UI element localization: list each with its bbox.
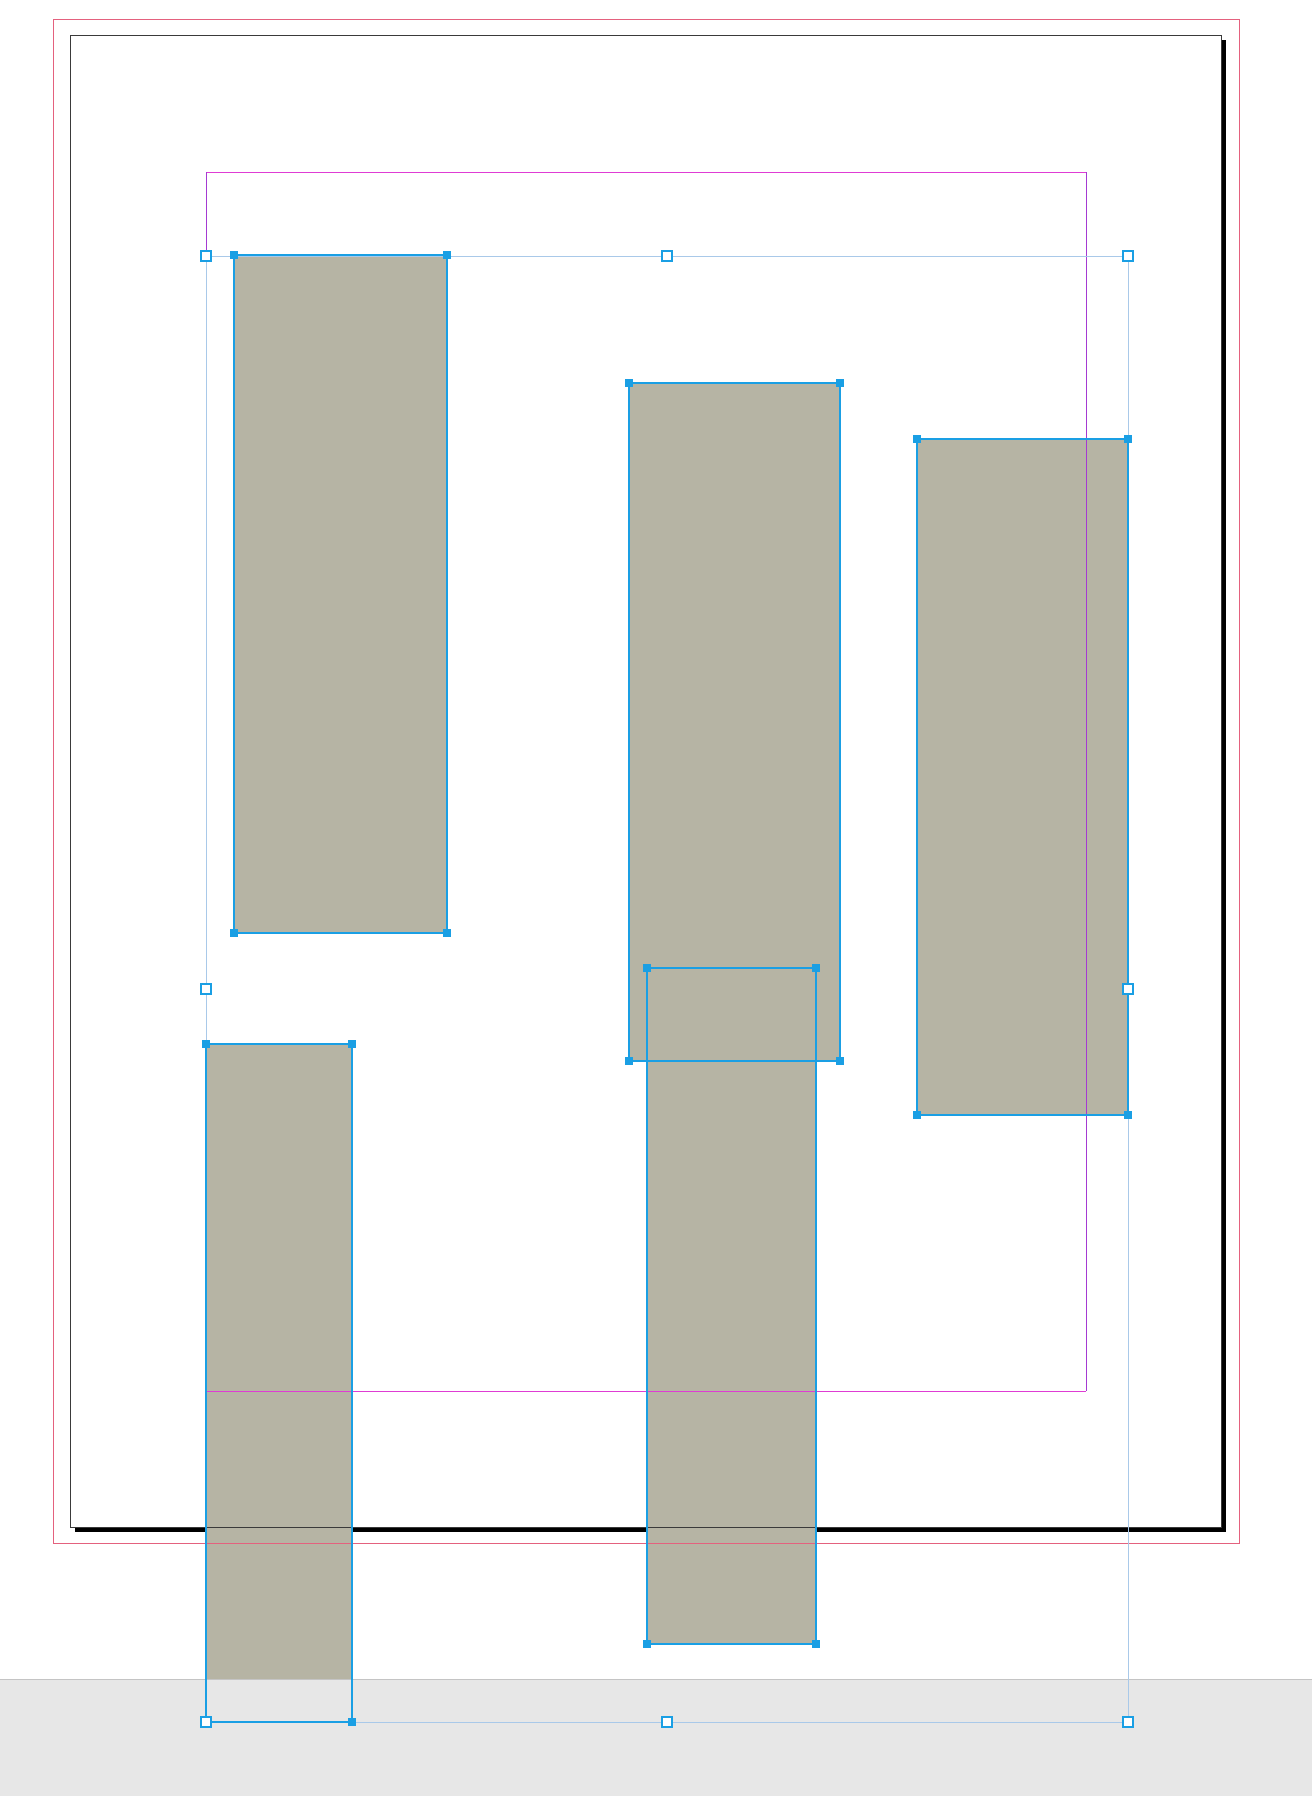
page-edge — [70, 35, 1222, 1528]
frame-1-corner-handle-3[interactable] — [443, 929, 451, 937]
selection-handle-bottom-center[interactable] — [661, 1716, 673, 1728]
frame-2-corner-handle-2[interactable] — [625, 1057, 633, 1065]
handles-layer — [0, 0, 1312, 1796]
frame-2-corner-handle-0[interactable] — [625, 379, 633, 387]
frame-5-corner-handle-0[interactable] — [202, 1040, 210, 1048]
page-drop-shadow — [75, 40, 1226, 1532]
frame-1-corner-handle-2[interactable] — [230, 929, 238, 937]
column-guide-right — [1086, 172, 1087, 1391]
selection-layer — [0, 0, 1312, 1796]
frame-3-corner-handle-1[interactable] — [1124, 435, 1132, 443]
frame-2-edge[interactable] — [628, 382, 841, 1062]
frame-4-edge[interactable] — [646, 967, 817, 1645]
outside-pasteboard-band — [0, 1679, 1312, 1796]
column-guide-left — [206, 172, 207, 1391]
outside-band-layer — [0, 0, 1312, 1796]
frame-fill-layer — [0, 0, 1312, 1796]
frame-3-corner-handle-2[interactable] — [913, 1111, 921, 1119]
selection-handle-top-left[interactable] — [200, 250, 212, 262]
frame-5-corner-handle-1[interactable] — [348, 1040, 356, 1048]
page-layer — [0, 0, 1312, 1796]
frame-3-fill[interactable] — [917, 439, 1128, 1115]
frame-1-corner-handle-0[interactable] — [230, 251, 238, 259]
frame-1-edge[interactable] — [233, 254, 448, 934]
frame-4-corner-handle-2[interactable] — [643, 1640, 651, 1648]
selection-handle-bottom-left[interactable] — [200, 1716, 212, 1728]
frame-2-fill[interactable] — [629, 383, 840, 1061]
frame-3-corner-handle-3[interactable] — [1124, 1111, 1132, 1119]
selection-handle-mid-left[interactable] — [200, 983, 212, 995]
frame-5-fill[interactable] — [206, 1044, 352, 1722]
selection-bounding-box — [206, 256, 1129, 1723]
margin-guide-top — [206, 172, 1086, 173]
frame-1-corner-handle-1[interactable] — [443, 251, 451, 259]
margin-guide-bottom — [206, 1391, 1086, 1392]
frame-4-corner-handle-1[interactable] — [812, 964, 820, 972]
frame-2-corner-handle-3[interactable] — [836, 1057, 844, 1065]
frame-5-corner-handle-3[interactable] — [348, 1718, 356, 1726]
bleed-guide — [53, 19, 1240, 1544]
page[interactable] — [70, 35, 1221, 1527]
page-outline-layer — [0, 0, 1312, 1796]
selection-handle-top-center[interactable] — [661, 250, 673, 262]
selection-handle-bottom-right[interactable] — [1122, 1716, 1134, 1728]
frame-5-corner-handle-2[interactable] — [202, 1718, 210, 1726]
selection-handle-mid-right[interactable] — [1122, 983, 1134, 995]
frame-2-corner-handle-1[interactable] — [836, 379, 844, 387]
frame-4-fill[interactable] — [647, 968, 816, 1644]
frame-5-edge[interactable] — [205, 1043, 353, 1723]
pasteboard-canvas[interactable] — [0, 0, 1312, 1796]
guides-layer — [0, 0, 1312, 1796]
selection-handle-top-right[interactable] — [1122, 250, 1134, 262]
frame-4-corner-handle-0[interactable] — [643, 964, 651, 972]
frame-4-corner-handle-3[interactable] — [812, 1640, 820, 1648]
frame-3-corner-handle-0[interactable] — [913, 435, 921, 443]
frame-1-fill[interactable] — [234, 255, 447, 933]
frame-3-edge[interactable] — [916, 438, 1129, 1116]
